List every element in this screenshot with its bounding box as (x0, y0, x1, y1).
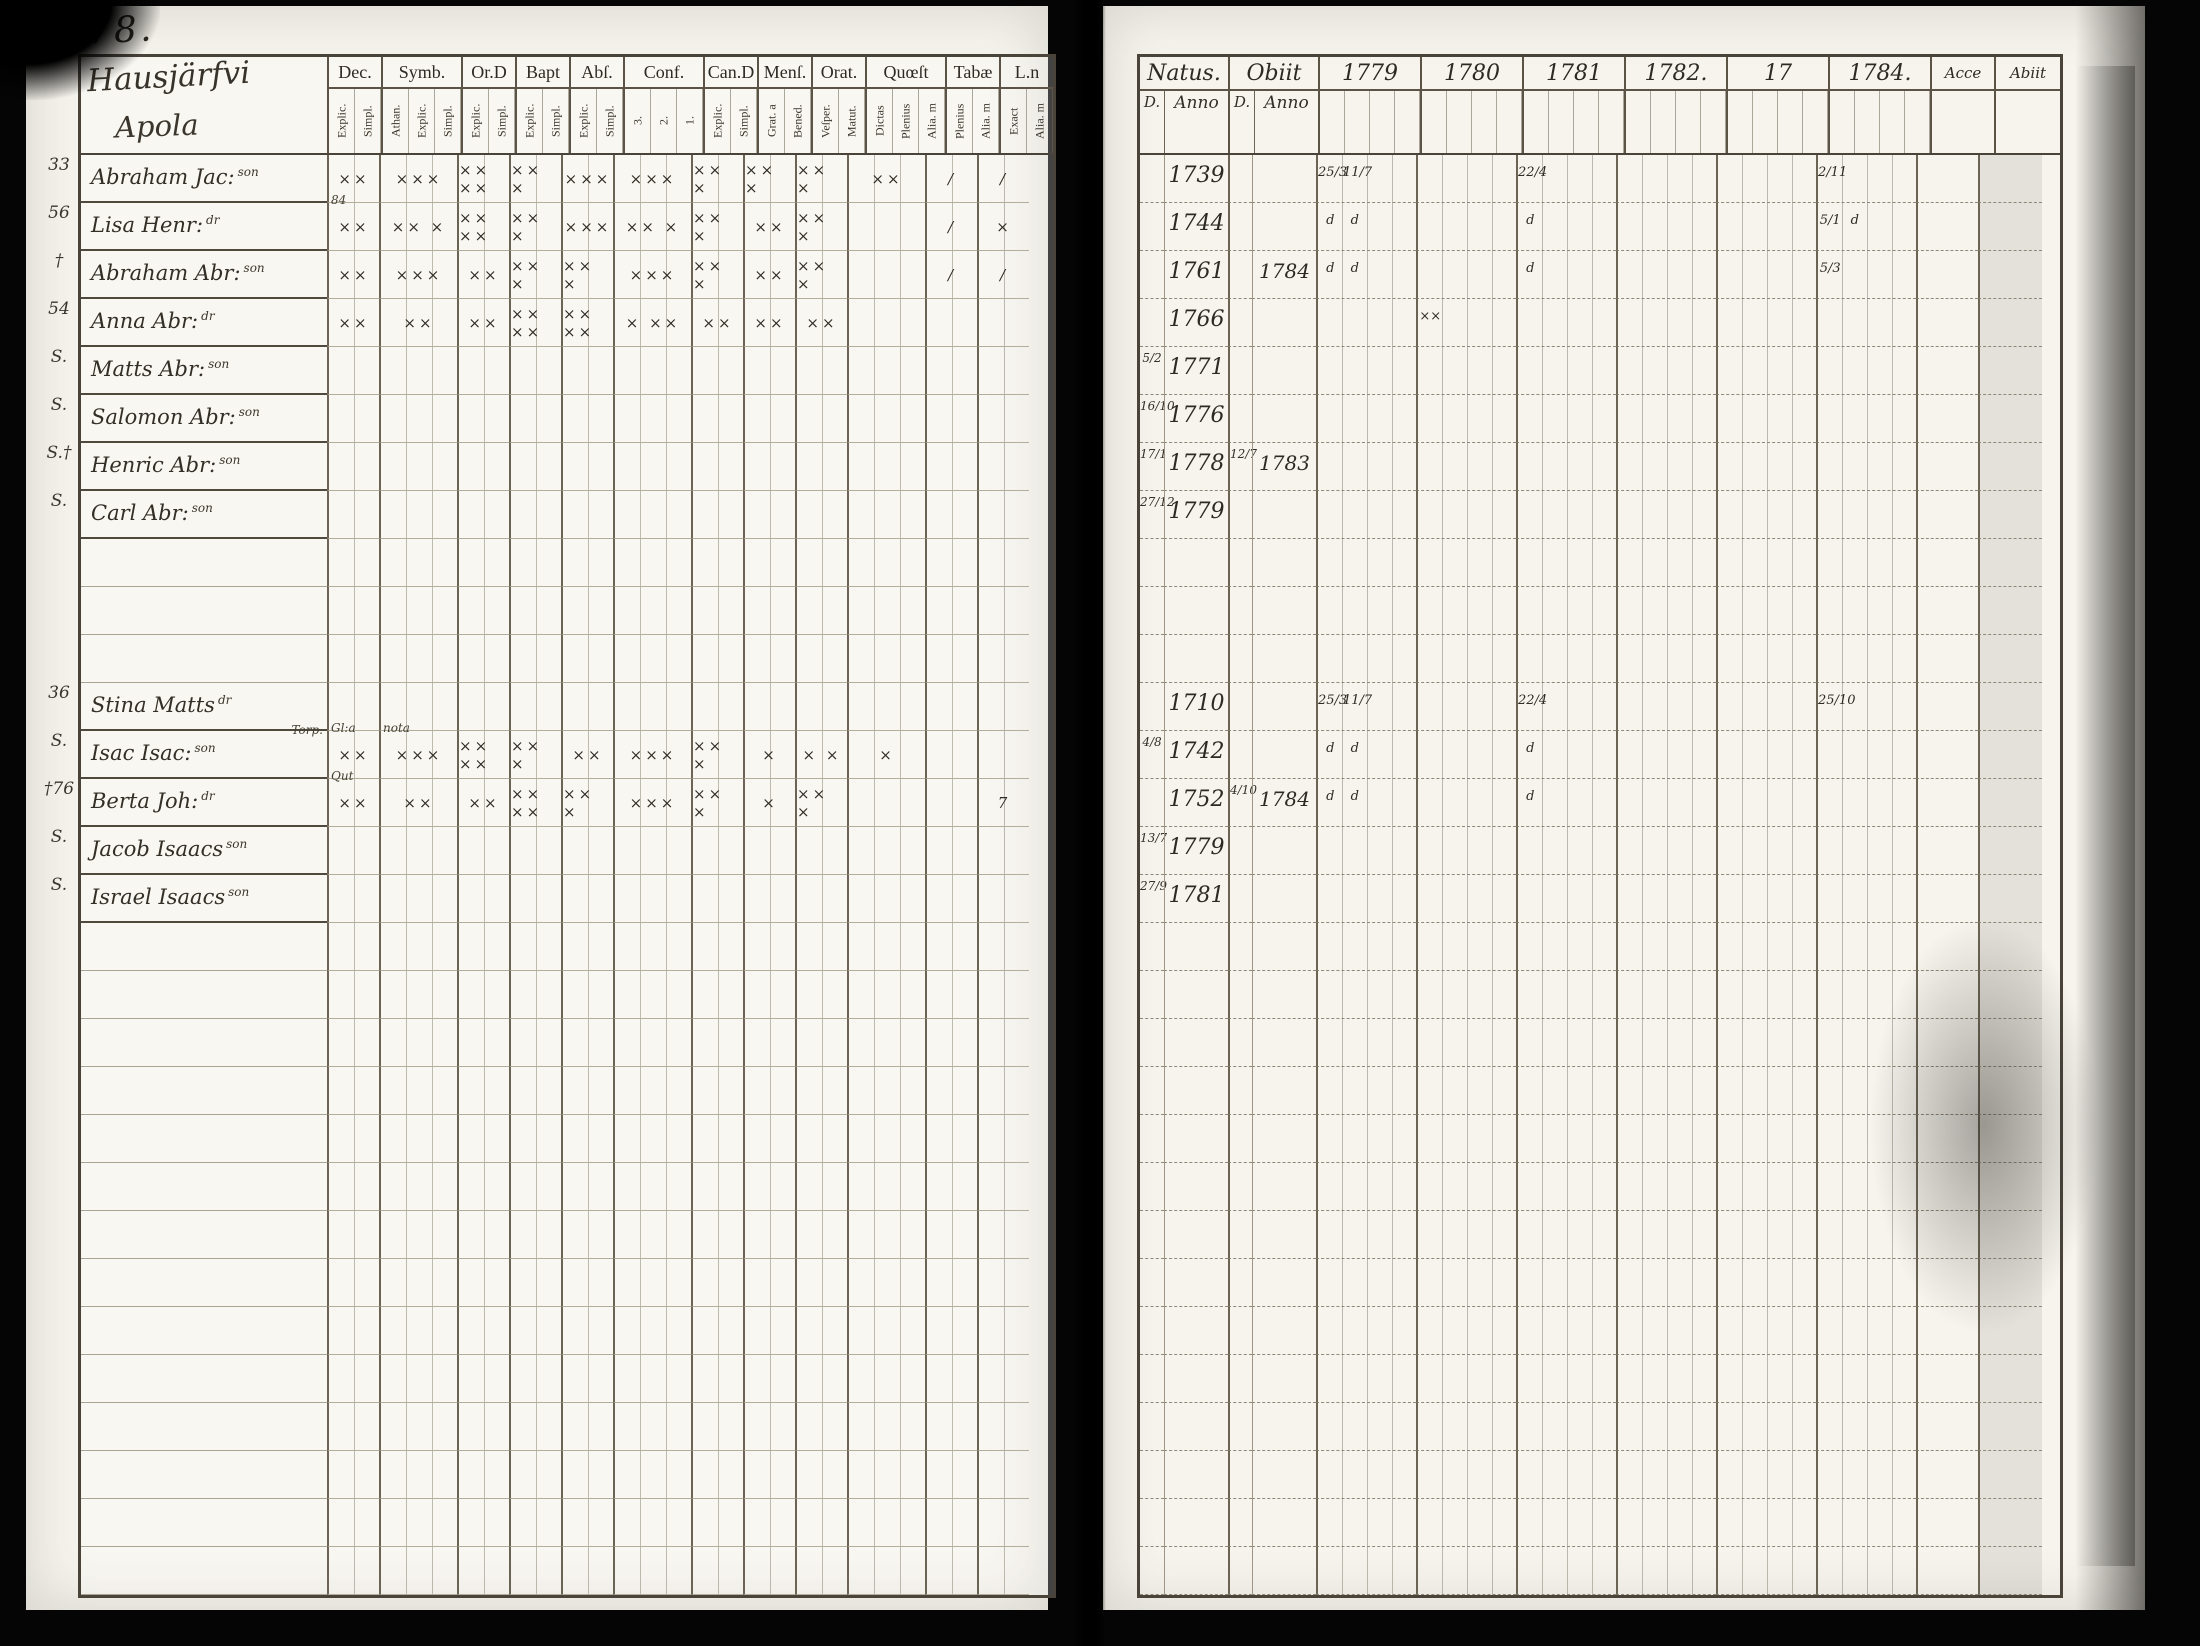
year-marks-cell (1716, 539, 1816, 587)
right-table: Natus.D.AnnoObiitD.Anno1779178017811782.… (1137, 54, 2063, 1598)
name-cell: Abraham Jac:son (81, 155, 327, 203)
communion-mark (1492, 1211, 1517, 1258)
person-name: Berta Joh: (91, 789, 198, 813)
column-label: L.n (1001, 57, 1053, 89)
communion-mark (1743, 923, 1768, 970)
accessit-cell (1916, 443, 1978, 491)
communion-mark (1518, 1115, 1543, 1162)
communion-mark (1892, 155, 1916, 202)
communion-mark (1892, 635, 1917, 682)
mark-cell (457, 347, 509, 395)
abiit-cell (1978, 395, 2042, 443)
obiit-year-cell (1252, 875, 1316, 923)
communion-mark (1418, 971, 1443, 1018)
mark-cell (925, 1499, 977, 1547)
communion-mark (1643, 875, 1668, 922)
communion-mark (1518, 635, 1543, 682)
subcolumn-label: Explic. (571, 89, 597, 153)
obiit-year-cell (1252, 539, 1316, 587)
mark-cell: ×× × (743, 155, 795, 203)
mark-cell (327, 1259, 379, 1307)
obiit-year-cell (1252, 827, 1316, 875)
register-row: 1744ddd5/1d (1140, 203, 2060, 251)
communion-mark (1543, 251, 1568, 298)
year-marks-cell: 5/1d (1816, 203, 1916, 251)
communion-marks: ×× × (797, 257, 847, 293)
column-subheaders: Athan.Explic.Simpl. (383, 89, 461, 153)
accessit-cell (1916, 731, 1978, 779)
communion-mark (1392, 731, 1417, 778)
register-row (1140, 539, 2060, 587)
communion-mark (1643, 587, 1668, 634)
year-marks-cell (1816, 1451, 1916, 1499)
communion-mark (1767, 1307, 1792, 1354)
mark-cell (613, 347, 691, 395)
person-name: Jacob Isaacs (91, 837, 223, 861)
communion-mark (1518, 395, 1543, 442)
communion-mark (1792, 395, 1817, 442)
year-marks-cell (1716, 683, 1816, 731)
abiit-cell (1978, 587, 2042, 635)
mark-cell (379, 443, 457, 491)
communion-mark (1318, 1355, 1343, 1402)
accessit-cell (1916, 587, 1978, 635)
mark-cell: ×× (743, 251, 795, 299)
communion-mark: d (1343, 251, 1368, 298)
communion-mark (1543, 443, 1568, 490)
communion-mark (1492, 1259, 1517, 1306)
communion-mark (1392, 827, 1417, 874)
communion-mark (1543, 971, 1568, 1018)
mark-cell (691, 1499, 743, 1547)
communion-mark (1767, 827, 1792, 874)
communion-marks: ×× × (563, 785, 613, 821)
communion-mark (1718, 683, 1743, 730)
year-marks-cell (1416, 1019, 1516, 1067)
mark-cell: × (743, 779, 795, 827)
mark-cell (457, 1259, 509, 1307)
communion-mark (1443, 1067, 1468, 1114)
communion-mark (1718, 1355, 1743, 1402)
communion-mark (1592, 779, 1617, 826)
communion-mark (1743, 635, 1768, 682)
communion-mark (1892, 491, 1917, 538)
communion-mark (1392, 443, 1417, 490)
obiit-year-cell (1252, 203, 1316, 251)
communion-marks: × (762, 794, 778, 812)
mark-cell: ×× ×× (561, 299, 613, 347)
communion-mark (1743, 1451, 1768, 1498)
accessit-cell (1916, 1355, 1978, 1403)
mark-cell: ×× ×× (457, 155, 509, 203)
margin-note: S. (40, 827, 78, 875)
year-marks-cell (1416, 443, 1516, 491)
mark-cell (509, 539, 561, 587)
communion-mark (1643, 827, 1668, 874)
mark-cell (847, 1019, 925, 1067)
mark-cell (795, 395, 847, 443)
communion-mark (1643, 251, 1668, 298)
communion-mark (1543, 1451, 1568, 1498)
communion-mark (1418, 1259, 1443, 1306)
communion-mark (1667, 635, 1692, 682)
person-name: Salomon Abr: (91, 405, 236, 429)
communion-mark (1743, 1211, 1768, 1258)
communion-mark (1543, 1115, 1568, 1162)
communion-mark (1792, 683, 1817, 730)
year-marks-cell (1716, 1547, 1816, 1595)
communion-mark (1392, 491, 1417, 538)
communion-mark (1767, 1115, 1792, 1162)
communion-mark (1418, 347, 1443, 394)
communion-mark (1543, 491, 1568, 538)
communion-mark: 25/3 (1318, 155, 1343, 202)
marginal-annotation: Qut (331, 769, 353, 783)
mark-cell (509, 1403, 561, 1451)
mark-cell: ×× × (795, 251, 847, 299)
mark-cell (925, 971, 977, 1019)
communion-mark (1567, 1259, 1592, 1306)
year-subcolumns (1830, 91, 1930, 153)
margin-note: 54 (40, 299, 78, 347)
communion-mark (1467, 971, 1492, 1018)
communion-mark (1643, 1499, 1668, 1546)
communion-mark (1367, 1547, 1392, 1594)
communion-mark (1567, 299, 1592, 346)
name-cell (81, 1211, 327, 1259)
communion-mark (1318, 1307, 1343, 1354)
name-cell: Jacob Isaacsson (81, 827, 327, 875)
year-marks-cell: ×× (1416, 299, 1516, 347)
communion-mark (1543, 1355, 1568, 1402)
subcolumn-label: Simpl. (355, 89, 381, 153)
communion-mark (1792, 971, 1817, 1018)
year-marks-cell: d (1516, 251, 1616, 299)
year-marks-cell (1316, 971, 1416, 1019)
communion-mark (1767, 779, 1792, 826)
register-row: Anna Abr:dr×××××××× ×××× ××× ×××××××× (81, 299, 1053, 347)
column-year-1779: 1779 (1318, 57, 1420, 153)
margin-note (40, 971, 78, 1019)
year-marks-cell (1416, 1355, 1516, 1403)
year-marks-cell (1416, 971, 1516, 1019)
communion-mark (1618, 779, 1643, 826)
year-marks-cell (1816, 491, 1916, 539)
column-year-1784: 1784. (1828, 57, 1930, 153)
year-marks-cell (1516, 539, 1616, 587)
register-row (81, 1547, 1053, 1595)
year-marks-cell (1316, 1211, 1416, 1259)
mark-cell (457, 1355, 509, 1403)
year-marks-cell (1416, 779, 1516, 827)
communion-mark (1543, 155, 1567, 202)
communion-mark (1892, 779, 1917, 826)
communion-mark (1667, 731, 1692, 778)
communion-mark (1843, 827, 1868, 874)
communion-mark (1867, 587, 1892, 634)
communion-mark: 25/3 (1318, 683, 1343, 730)
communion-mark (1543, 587, 1568, 634)
mark-cell: ××× (613, 251, 691, 299)
year-marks-cell (1816, 779, 1916, 827)
communion-mark (1367, 299, 1392, 346)
communion-mark (1743, 1259, 1768, 1306)
subcolumn-label: Explic. (463, 89, 489, 153)
communion-marks: × ×× (626, 314, 680, 332)
abiit-cell (1978, 347, 2042, 395)
natus-year-cell: 1761 (1164, 251, 1228, 299)
communion-mark (1343, 539, 1368, 586)
name-suffix: son (208, 357, 229, 371)
communion-mark (1492, 539, 1517, 586)
communion-mark (1867, 443, 1892, 490)
mark-cell (925, 779, 977, 827)
communion-mark (1492, 779, 1517, 826)
left-table-header: Hausjärfvi Apola Dec.Explic.Simpl.Symb.A… (81, 57, 1053, 155)
communion-mark (1492, 155, 1517, 202)
right-table-main: Natus.D.AnnoObiitD.Anno1779178017811782.… (1137, 54, 2063, 1598)
mark-cell: ×× ×× (457, 731, 509, 779)
mark-cell (561, 1163, 613, 1211)
name-cell (81, 587, 327, 635)
communion-marks: ×× ×× (459, 737, 509, 773)
communion-mark (1567, 347, 1592, 394)
communion-mark (1718, 1499, 1743, 1546)
mark-cell (795, 827, 847, 875)
communion-mark (1692, 155, 1717, 202)
year-marks-cell (1316, 1115, 1416, 1163)
register-row (81, 1019, 1053, 1067)
mark-cell (379, 1307, 457, 1355)
year-marks-cell (1516, 347, 1616, 395)
communion-mark (1567, 1307, 1592, 1354)
communion-mark (1318, 827, 1343, 874)
mark-cell (691, 971, 743, 1019)
communion-mark (1392, 779, 1417, 826)
natus-day-cell (1140, 635, 1164, 683)
year-marks-cell (1616, 1163, 1716, 1211)
natus-day-cell (1140, 1307, 1164, 1355)
mark-cell (743, 827, 795, 875)
communion-mark (1743, 683, 1768, 730)
communion-mark (1592, 1355, 1617, 1402)
register-row (81, 1355, 1053, 1403)
communion-mark (1467, 1403, 1492, 1450)
year-marks-cell (1816, 635, 1916, 683)
column-label: Dec. (329, 57, 381, 89)
communion-mark (1843, 875, 1868, 922)
communion-mark (1692, 1355, 1717, 1402)
communion-mark (1718, 635, 1743, 682)
communion-mark (1718, 1019, 1743, 1066)
communion-mark (1418, 443, 1443, 490)
communion-mark (1467, 779, 1492, 826)
mark-cell (379, 827, 457, 875)
mark-cell (795, 1259, 847, 1307)
communion-mark (1367, 347, 1392, 394)
mark-cell: ×× × (691, 203, 743, 251)
natus-day-cell (1140, 299, 1164, 347)
mark-cell (691, 1115, 743, 1163)
mark-cell (379, 587, 457, 635)
year-marks-cell (1516, 395, 1616, 443)
communion-mark (1818, 1259, 1843, 1306)
mark-cell (379, 923, 457, 971)
communion-marks: ×× (754, 218, 785, 236)
communion-mark (1692, 203, 1717, 250)
mark-cell (327, 1163, 379, 1211)
mark-cell (613, 539, 691, 587)
communion-mark (1767, 347, 1792, 394)
year-marks-cell (1316, 1163, 1416, 1211)
column-subheaders: DictasPleniusAlia. m (867, 89, 945, 153)
mark-cell (977, 1451, 1029, 1499)
communion-mark (1843, 1067, 1868, 1114)
mark-cell (691, 1547, 743, 1595)
communion-mark (1343, 923, 1368, 970)
mark-cell (977, 347, 1029, 395)
communion-mark (1843, 395, 1868, 442)
mark-cell (795, 683, 847, 731)
mark-cell (925, 587, 977, 635)
year-marks-cell (1716, 1211, 1816, 1259)
name-cell (81, 1451, 327, 1499)
register-row (81, 1451, 1053, 1499)
communion-mark (1418, 1163, 1443, 1210)
communion-marks: ××× (565, 218, 612, 236)
communion-mark (1418, 635, 1443, 682)
mark-cell (925, 1067, 977, 1115)
mark-cell (847, 1355, 925, 1403)
communion-mark (1867, 491, 1892, 538)
person-name: Anna Abr: (91, 309, 198, 333)
mark-cell: ×× × (561, 251, 613, 299)
mark-cell (379, 635, 457, 683)
communion-mark (1392, 1451, 1417, 1498)
margin-note: S. (40, 347, 78, 395)
communion-mark (1418, 731, 1443, 778)
register-row (81, 587, 1053, 635)
mark-cell (457, 683, 509, 731)
communion-mark (1467, 491, 1492, 538)
communion-mark (1867, 203, 1892, 250)
register-row: 4/81742ddd (1140, 731, 2060, 779)
mark-cell (509, 587, 561, 635)
communion-mark (1592, 635, 1617, 682)
obiit-year-cell (1252, 1115, 1316, 1163)
mark-cell (847, 299, 925, 347)
mark-cell (561, 1451, 613, 1499)
subcolumn-label: Simpl. (731, 89, 757, 153)
year-marks-cell (1516, 443, 1616, 491)
communion-mark: 5/1 (1818, 203, 1843, 250)
communion-mark (1392, 347, 1417, 394)
natus-year-cell: 1742 (1164, 731, 1228, 779)
natus-year-cell (1164, 1163, 1228, 1211)
mark-cell (561, 683, 613, 731)
communion-mark (1692, 347, 1717, 394)
communion-mark (1643, 1163, 1668, 1210)
anno-label: Anno (1164, 91, 1228, 153)
mark-cell (561, 491, 613, 539)
natus-day-cell (1140, 1115, 1164, 1163)
mark-cell (743, 635, 795, 683)
natus-year-cell: 1744 (1164, 203, 1228, 251)
communion-mark (1692, 1163, 1717, 1210)
communion-mark (1392, 251, 1417, 298)
year-marks-cell (1616, 251, 1716, 299)
communion-mark (1892, 443, 1917, 490)
communion-mark (1818, 491, 1843, 538)
communion-mark (1592, 1547, 1617, 1594)
communion-mark (1592, 1307, 1617, 1354)
communion-mark (1392, 587, 1417, 634)
communion-mark (1643, 539, 1668, 586)
communion-marks: ×× × (511, 209, 561, 245)
column-year-1784-subheader (1830, 91, 1930, 153)
communion-mark (1818, 443, 1843, 490)
communion-mark (1467, 635, 1492, 682)
mark-cell: × (847, 731, 925, 779)
communion-mark (1443, 395, 1468, 442)
mark-cell (847, 347, 925, 395)
register-row: Abraham Abr:son××××××××× ××× ×××××× ××××… (81, 251, 1053, 299)
natus-day-cell (1140, 1067, 1164, 1115)
mark-cell (743, 1355, 795, 1403)
communion-mark (1818, 923, 1843, 970)
mark-cell: ×××nota (379, 731, 457, 779)
communion-mark (1443, 1115, 1468, 1162)
communion-mark (1518, 1307, 1543, 1354)
obiit-day-cell (1228, 827, 1252, 875)
mark-cell (457, 1019, 509, 1067)
communion-mark (1418, 491, 1443, 538)
mark-cell: ×× × (509, 251, 561, 299)
name-cell: Stina Mattsdr (81, 683, 327, 731)
communion-mark (1818, 587, 1843, 634)
year-marks-cell (1716, 443, 1816, 491)
year-marks-cell (1316, 1067, 1416, 1115)
communion-mark (1643, 395, 1668, 442)
natus-day-cell (1140, 1547, 1164, 1595)
year-subcolumns (1728, 91, 1828, 153)
natus-day-cell (1140, 1019, 1164, 1067)
communion-marks: / (1000, 170, 1008, 188)
communion-mark (1567, 731, 1592, 778)
mark-cell (457, 491, 509, 539)
communion-mark (1367, 491, 1392, 538)
name-cell (81, 1067, 327, 1115)
name-cell (81, 923, 327, 971)
communion-marks: ××× (565, 170, 612, 188)
mark-cell (327, 1403, 379, 1451)
register-row: Abraham Jac:son××××××× ×××× ××××××××× ××… (81, 155, 1053, 203)
mark-cell (847, 923, 925, 971)
person-name: Abraham Abr: (91, 261, 241, 285)
communion-mark (1767, 1259, 1792, 1306)
communion-mark (1367, 1403, 1392, 1450)
accessit-cell (1916, 827, 1978, 875)
mark-cell (327, 491, 379, 539)
left-table-main: Hausjärfvi Apola Dec.Explic.Simpl.Symb.A… (78, 54, 1056, 1598)
mark-cell (327, 635, 379, 683)
mark-cell (613, 1307, 691, 1355)
year-subcolumns (1524, 91, 1624, 153)
communion-mark (1392, 635, 1417, 682)
mark-cell (509, 1067, 561, 1115)
natus-year-cell: 1776 (1164, 395, 1228, 443)
communion-marks: ×× × (626, 218, 680, 236)
